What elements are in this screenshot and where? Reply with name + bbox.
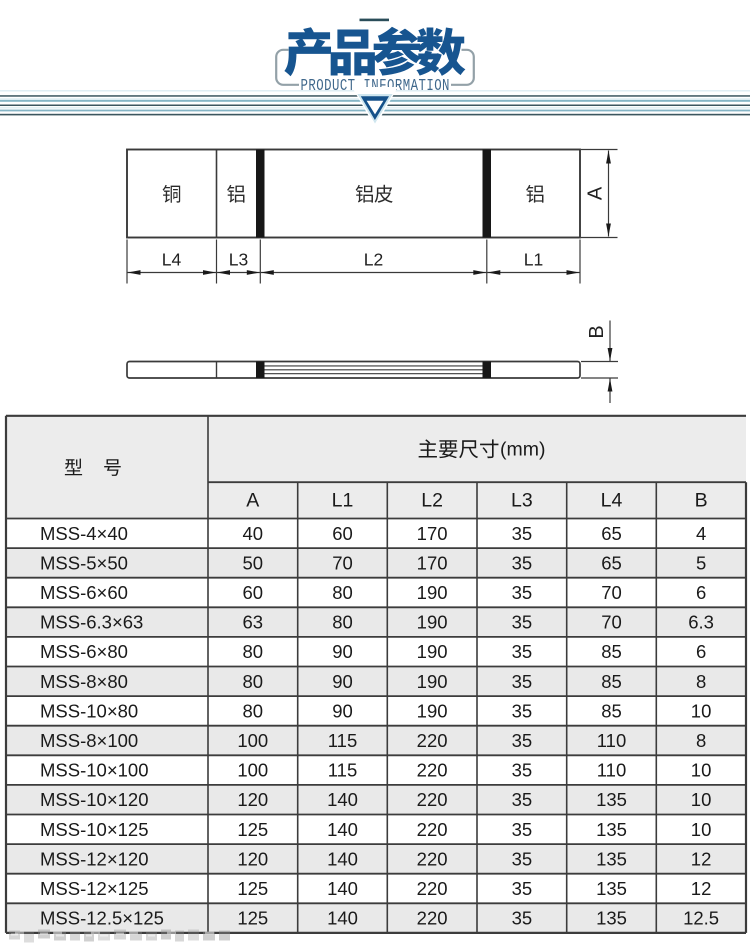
- svg-text:135: 135: [596, 848, 627, 869]
- svg-text:65: 65: [601, 552, 622, 573]
- svg-text:140: 140: [327, 848, 358, 869]
- svg-text:(mm): (mm): [500, 439, 545, 461]
- svg-text:MSS-10×120: MSS-10×120: [40, 789, 149, 810]
- svg-text:35: 35: [512, 552, 533, 573]
- svg-text:35: 35: [512, 582, 533, 603]
- svg-text:70: 70: [601, 612, 622, 633]
- svg-text:220: 220: [417, 760, 448, 781]
- svg-text:35: 35: [512, 789, 533, 810]
- svg-text:220: 220: [417, 908, 448, 929]
- svg-text:L4: L4: [601, 490, 623, 512]
- svg-text:5: 5: [696, 552, 706, 573]
- svg-text:35: 35: [512, 700, 533, 721]
- svg-text:170: 170: [417, 523, 448, 544]
- svg-text:220: 220: [417, 848, 448, 869]
- svg-text:135: 135: [596, 878, 627, 899]
- svg-text:220: 220: [417, 878, 448, 899]
- svg-text:135: 135: [596, 789, 627, 810]
- svg-text:190: 190: [417, 641, 448, 662]
- svg-text:220: 220: [417, 819, 448, 840]
- svg-text:MSS-6×80: MSS-6×80: [40, 641, 128, 662]
- svg-text:35: 35: [512, 878, 533, 899]
- svg-text:35: 35: [512, 523, 533, 544]
- svg-text:63: 63: [243, 612, 264, 633]
- svg-text:35: 35: [512, 908, 533, 929]
- svg-text:115: 115: [328, 730, 358, 751]
- svg-text:L2: L2: [421, 490, 443, 512]
- svg-text:6.3: 6.3: [688, 612, 714, 633]
- svg-text:35: 35: [512, 819, 533, 840]
- svg-text:50: 50: [243, 552, 264, 573]
- svg-text:125: 125: [237, 878, 268, 899]
- svg-text:MSS-8×100: MSS-8×100: [40, 730, 138, 751]
- svg-text:10: 10: [691, 819, 712, 840]
- svg-text:35: 35: [512, 641, 533, 662]
- svg-text:190: 190: [417, 700, 448, 721]
- svg-text:65: 65: [601, 523, 622, 544]
- svg-text:A: A: [246, 490, 259, 512]
- svg-text:85: 85: [601, 700, 622, 721]
- svg-text:90: 90: [332, 641, 353, 662]
- svg-text:MSS-4×40: MSS-4×40: [40, 523, 128, 544]
- svg-text:MSS-6.3×63: MSS-6.3×63: [40, 612, 143, 633]
- svg-text:70: 70: [332, 552, 353, 573]
- svg-text:MSS-10×100: MSS-10×100: [40, 760, 149, 781]
- svg-text:140: 140: [327, 908, 358, 929]
- svg-text:125: 125: [237, 908, 268, 929]
- svg-text:110: 110: [597, 760, 627, 781]
- svg-text:80: 80: [332, 582, 353, 603]
- svg-text:12: 12: [691, 848, 712, 869]
- svg-text:100: 100: [237, 760, 268, 781]
- svg-text:220: 220: [417, 730, 448, 751]
- svg-text:40: 40: [243, 523, 264, 544]
- svg-text:10: 10: [691, 760, 712, 781]
- svg-text:35: 35: [512, 671, 533, 692]
- svg-text:90: 90: [332, 700, 353, 721]
- svg-text:MSS-12.5×125: MSS-12.5×125: [40, 908, 164, 929]
- svg-text:MSS-6×60: MSS-6×60: [40, 582, 128, 603]
- svg-text:140: 140: [327, 789, 358, 810]
- svg-text:80: 80: [243, 700, 264, 721]
- svg-text:190: 190: [417, 671, 448, 692]
- svg-text:MSS-5×50: MSS-5×50: [40, 552, 128, 573]
- svg-text:12.5: 12.5: [683, 908, 719, 929]
- svg-text:140: 140: [327, 878, 358, 899]
- svg-text:MSS-10×125: MSS-10×125: [40, 819, 149, 840]
- svg-text:115: 115: [328, 760, 358, 781]
- svg-text:MSS-12×120: MSS-12×120: [40, 848, 149, 869]
- svg-text:B: B: [695, 490, 708, 512]
- svg-text:60: 60: [243, 582, 264, 603]
- svg-text:135: 135: [596, 908, 627, 929]
- svg-text:10: 10: [691, 700, 712, 721]
- svg-text:80: 80: [332, 612, 353, 633]
- svg-text:MSS-8×80: MSS-8×80: [40, 671, 128, 692]
- svg-text:8: 8: [696, 730, 706, 751]
- svg-text:220: 220: [417, 789, 448, 810]
- svg-text:6: 6: [696, 641, 706, 662]
- svg-text:6: 6: [696, 582, 706, 603]
- svg-text:90: 90: [332, 671, 353, 692]
- svg-text:80: 80: [243, 671, 264, 692]
- svg-text:125: 125: [237, 819, 268, 840]
- svg-text:L1: L1: [332, 490, 354, 512]
- svg-text:120: 120: [237, 789, 268, 810]
- svg-text:35: 35: [512, 612, 533, 633]
- svg-text:70: 70: [601, 582, 622, 603]
- svg-text:80: 80: [243, 641, 264, 662]
- svg-text:12: 12: [691, 878, 712, 899]
- svg-text:4: 4: [696, 523, 706, 544]
- svg-text:110: 110: [597, 730, 627, 751]
- svg-text:190: 190: [417, 612, 448, 633]
- svg-text:190: 190: [417, 582, 448, 603]
- svg-text:140: 140: [327, 819, 358, 840]
- svg-text:100: 100: [237, 730, 268, 751]
- svg-text:MSS-12×125: MSS-12×125: [40, 878, 149, 899]
- svg-text:L3: L3: [511, 490, 533, 512]
- svg-text:10: 10: [691, 789, 712, 810]
- svg-text:85: 85: [601, 641, 622, 662]
- svg-text:170: 170: [417, 552, 448, 573]
- svg-text:120: 120: [237, 848, 268, 869]
- svg-text:85: 85: [601, 671, 622, 692]
- svg-text:8: 8: [696, 671, 706, 692]
- svg-text:35: 35: [512, 848, 533, 869]
- svg-text:35: 35: [512, 760, 533, 781]
- svg-text:60: 60: [332, 523, 353, 544]
- svg-text:35: 35: [512, 730, 533, 751]
- svg-text:MSS-10×80: MSS-10×80: [40, 700, 138, 721]
- svg-text:135: 135: [596, 819, 627, 840]
